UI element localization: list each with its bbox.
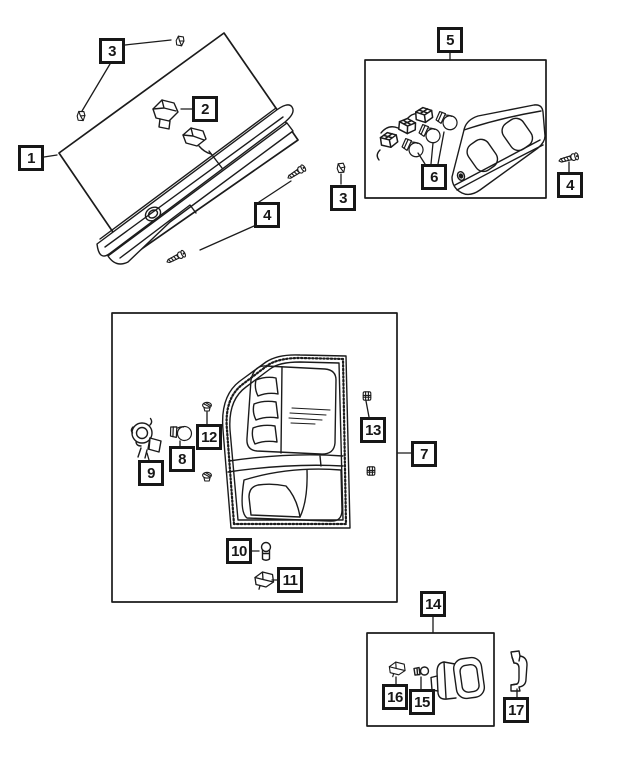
callout-14[interactable]: 14 [420, 591, 446, 617]
clip-icon [363, 392, 371, 400]
screw-icon [165, 250, 186, 265]
chmsl-housing-drawing [452, 105, 545, 195]
callout-13[interactable]: 13 [360, 417, 386, 443]
bulb-icon [169, 425, 192, 442]
callout-8[interactable]: 8 [169, 446, 195, 472]
tail-lamp-drawing [223, 355, 350, 528]
license-lamp-drawing [431, 656, 486, 700]
callout-11[interactable]: 11 [277, 567, 303, 593]
screw-icon [286, 164, 307, 181]
callout-9[interactable]: 9 [138, 460, 164, 486]
bulb-icon [417, 122, 443, 145]
callout-6[interactable]: 6 [421, 164, 447, 190]
clip-icon [175, 35, 185, 46]
diagram-line-art [0, 0, 640, 777]
clip-icon [337, 163, 345, 172]
bulb-socket-icon [389, 662, 405, 677]
lamp-connector-icon [183, 128, 211, 154]
callout-16[interactable]: 16 [382, 684, 408, 710]
callout-15[interactable]: 15 [409, 689, 435, 715]
callout-3-a[interactable]: 3 [99, 38, 125, 64]
assembly-5-group [337, 60, 579, 198]
bulb-icon [434, 109, 460, 132]
callout-2[interactable]: 2 [192, 96, 218, 122]
push-nut-icon [203, 472, 212, 481]
callout-10[interactable]: 10 [226, 538, 252, 564]
callout-12[interactable]: 12 [196, 424, 222, 450]
callout-5[interactable]: 5 [437, 27, 463, 53]
callout-4-b[interactable]: 4 [557, 172, 583, 198]
wiring-connector-icon [153, 100, 178, 129]
bulb-socket-icon [255, 572, 274, 589]
clip-icon [367, 467, 375, 475]
bracket-drawing [511, 651, 527, 691]
mini-bulb-icon [414, 667, 429, 675]
callout-7[interactable]: 7 [411, 441, 437, 467]
callout-3-b[interactable]: 3 [330, 185, 356, 211]
parts-diagram-page: 1 2 3 4 5 3 4 6 7 8 9 10 11 12 13 14 15 … [0, 0, 640, 777]
push-nut-icon [203, 402, 212, 411]
assembly-7-group [112, 313, 397, 602]
bulb-icon [400, 136, 426, 159]
assembly-1-group [59, 33, 307, 265]
callout-4-a[interactable]: 4 [254, 202, 280, 228]
callout-17[interactable]: 17 [503, 697, 529, 723]
lamp-socket-icon [131, 419, 161, 459]
clip-icon [77, 111, 86, 121]
callout-1[interactable]: 1 [18, 145, 44, 171]
small-bulb-icon [262, 543, 271, 561]
